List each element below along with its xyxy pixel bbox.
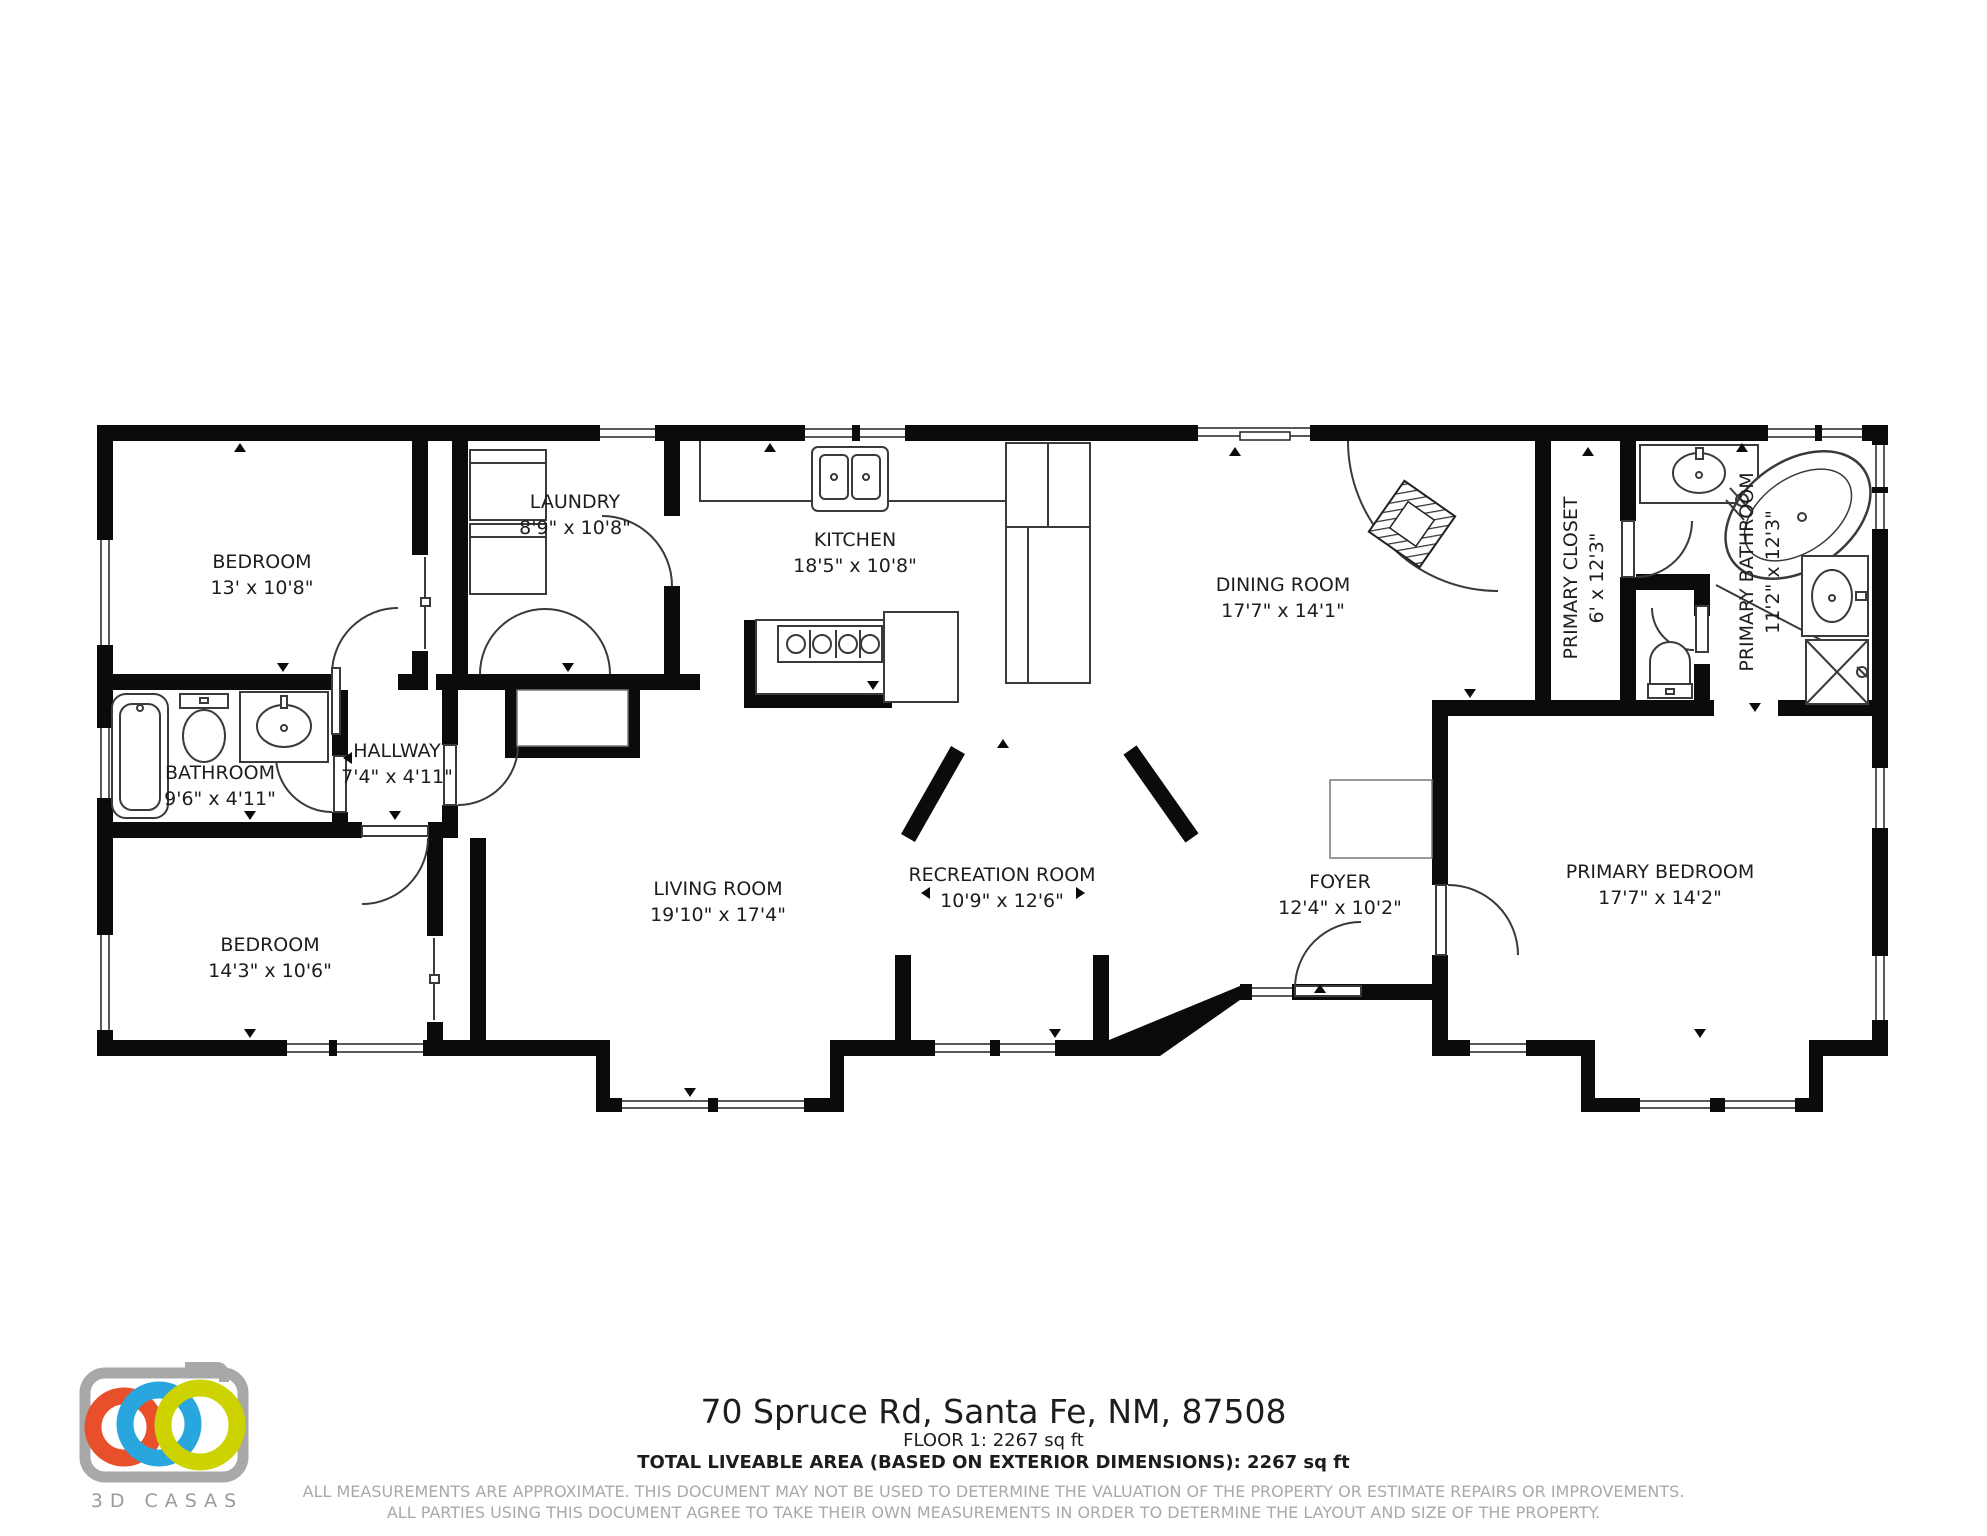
- room-label-bedroom-1: BEDROOM 13' x 10'8": [211, 549, 314, 601]
- kitchen-sink: [812, 447, 888, 511]
- kitchen-island: [744, 612, 958, 708]
- room-label-laundry: LAUNDRY 8'9" x 10'8": [519, 489, 631, 541]
- disclaimer-line-2: ALL PARTIES USING THIS DOCUMENT AGREE TO…: [0, 1503, 1987, 1522]
- room-label-hallway: HALLWAY 7'4" x 4'11": [341, 738, 453, 790]
- hall-closet: [517, 690, 628, 746]
- bathtub: [112, 694, 168, 818]
- floor-plan-page: BEDROOM 13' x 10'8" LAUNDRY 8'9" x 10'8"…: [0, 0, 1987, 1536]
- room-label-recreation-room: RECREATION ROOM 10'9" x 12'6": [908, 862, 1095, 914]
- room-label-dining-room: DINING ROOM 17'7" x 14'1": [1216, 572, 1351, 624]
- room-label-primary-bedroom: PRIMARY BEDROOM 17'7" x 14'2": [1566, 859, 1754, 911]
- foyer-closet: [1330, 780, 1432, 858]
- stove-icon: [778, 626, 882, 662]
- shower: [1806, 640, 1868, 704]
- primary-toilet: [1648, 642, 1692, 698]
- room-label-foyer: FOYER 12'4" x 10'2": [1278, 869, 1402, 921]
- room-label-living-room: LIVING ROOM 19'10" x 17'4": [650, 876, 786, 928]
- address-title: 70 Spruce Rd, Santa Fe, NM, 87508: [0, 1392, 1987, 1431]
- room-label-primary-bathroom: PRIMARY BATHROOM 11'2" x 12'3": [1734, 472, 1786, 671]
- fireplace-icon: [1369, 481, 1455, 567]
- room-label-bathroom: BATHROOM 9'6" x 4'11": [164, 760, 276, 812]
- fridge: [1006, 443, 1090, 527]
- shower-head-icon: [1857, 667, 1867, 677]
- disclaimer-line-1: ALL MEASUREMENTS ARE APPROXIMATE. THIS D…: [0, 1482, 1987, 1501]
- primary-vanity-right: [1802, 556, 1868, 636]
- toilet: [180, 694, 228, 762]
- total-area-line: TOTAL LIVEABLE AREA (BASED ON EXTERIOR D…: [0, 1452, 1987, 1473]
- floor-area-line: FLOOR 1: 2267 sq ft: [0, 1430, 1987, 1451]
- camera-icon: [85, 1367, 243, 1477]
- room-label-bedroom-2: BEDROOM 14'3" x 10'6": [208, 932, 332, 984]
- bathroom-sink: [240, 692, 328, 762]
- room-label-kitchen: KITCHEN 18'5" x 10'8": [793, 527, 917, 579]
- room-label-primary-closet: PRIMARY CLOSET 6' x 12'3": [1558, 496, 1610, 659]
- floor-plan-drawing: [0, 0, 1987, 1536]
- logo-brand-text: 3D CASAS: [62, 1490, 272, 1512]
